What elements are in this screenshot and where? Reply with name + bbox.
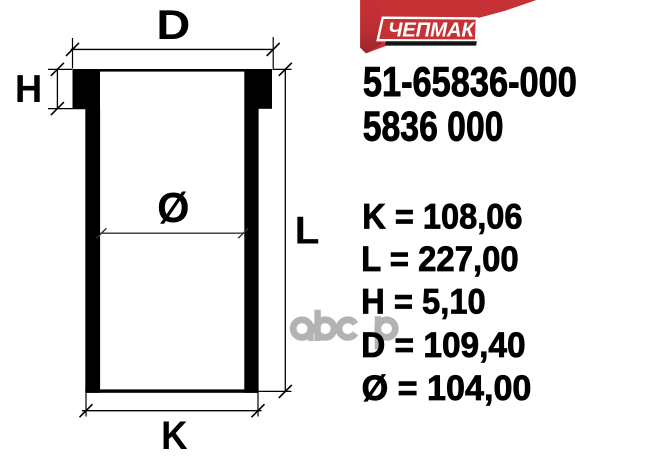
svg-text:L = 227,00: L = 227,00 [361, 240, 519, 279]
svg-text:K: K [161, 415, 188, 457]
svg-text:5836 000: 5836 000 [363, 104, 504, 150]
svg-text:D = 109,40: D = 109,40 [361, 326, 526, 365]
svg-text:Ø = 104,00: Ø = 104,00 [362, 370, 532, 409]
svg-text:H = 5,10: H = 5,10 [361, 282, 486, 321]
svg-text:D: D [156, 3, 190, 49]
svg-text:H: H [15, 67, 42, 111]
svg-text:L: L [295, 209, 320, 252]
svg-text:51-65836-000: 51-65836-000 [363, 59, 577, 106]
svg-text:ЧЕПМАК: ЧЕПМАК [388, 20, 475, 42]
svg-text:Ø: Ø [157, 184, 189, 231]
svg-text:K = 108,06: K = 108,06 [362, 198, 522, 237]
